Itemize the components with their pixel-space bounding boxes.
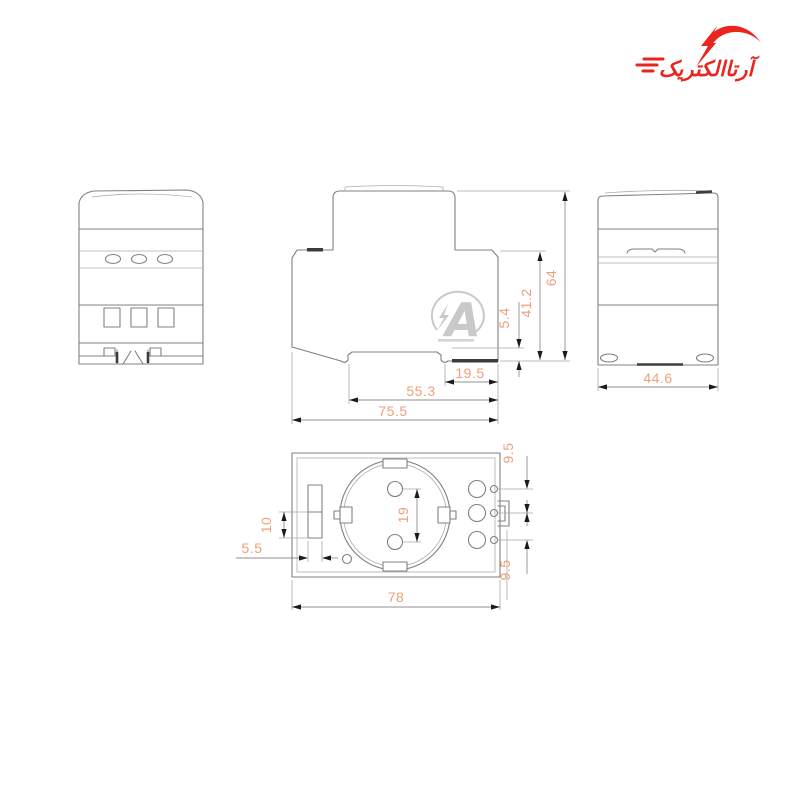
dim-slot-width: 5.5 [242,540,263,556]
front-view [79,190,203,364]
screw-hole [343,555,352,564]
dim-terminal-pitch-bottom: 9.5 [497,560,513,581]
mount-slot [697,354,714,362]
brand-watermark: A [432,292,484,347]
vent-hole [106,255,121,264]
dim-total-depth: 75.5 [378,403,407,419]
terminal-slot [131,308,147,327]
indicator-slot-upper [308,485,322,512]
watermark-caption-bar [438,339,474,342]
dim-rail-width: 19.5 [455,365,484,381]
terminal-holes [469,481,498,549]
latch-tab [307,248,323,252]
dim-terminal-pitch-top: 9.5 [500,443,516,464]
terminal-slot [104,308,120,327]
drawing-sheet: 64 41.2 5.4 19.5 55.3 7 [0,0,800,800]
back-view-dimensions: 44.6 [598,368,718,391]
rail-edge [452,359,498,363]
dim-body-height: 41.2 [518,288,534,317]
dim-back-width: 44.6 [643,370,672,386]
pin-hole-bottom [388,535,403,550]
clip-bracket [627,249,685,253]
technical-drawing-page: آرتاالکتریک [0,0,800,800]
earth-clip-right [438,507,456,523]
vent-hole [132,255,147,264]
brand-logo-text: آرتاالکتریک [659,55,761,82]
terminal-slot [158,308,174,327]
guide-notch-bottom [383,562,407,571]
dim-total-height: 64 [543,270,559,287]
earth-clip-left [334,507,352,523]
dim-pin-spacing: 19 [395,507,411,524]
back-view [598,190,718,365]
dim-slot-height: 10 [258,517,274,534]
din-clip [79,348,203,364]
brand-logo-graphic: آرتاالکتریک [622,10,800,88]
pin-hole-top [388,482,403,497]
mount-slot [601,354,618,362]
indicator-slot-lower [308,512,322,538]
side-view-dimensions: 64 41.2 5.4 19.5 55.3 7 [292,191,570,424]
dim-body-depth: 55.3 [406,383,435,399]
guide-notch-top [383,459,407,468]
vent-hole [158,255,173,264]
logo-swoosh [706,26,761,45]
dim-rail-notch: 5.4 [496,308,512,329]
watermark-letter: A [442,293,481,347]
dim-bottom-width: 78 [388,589,405,605]
brand-logo: آرتاالکتریک [622,10,800,88]
